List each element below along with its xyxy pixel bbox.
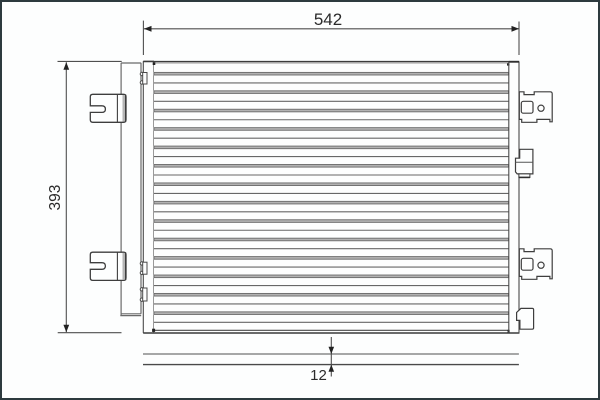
- svg-text:12: 12: [310, 367, 327, 384]
- svg-text:542: 542: [314, 10, 342, 29]
- svg-text:393: 393: [47, 185, 64, 211]
